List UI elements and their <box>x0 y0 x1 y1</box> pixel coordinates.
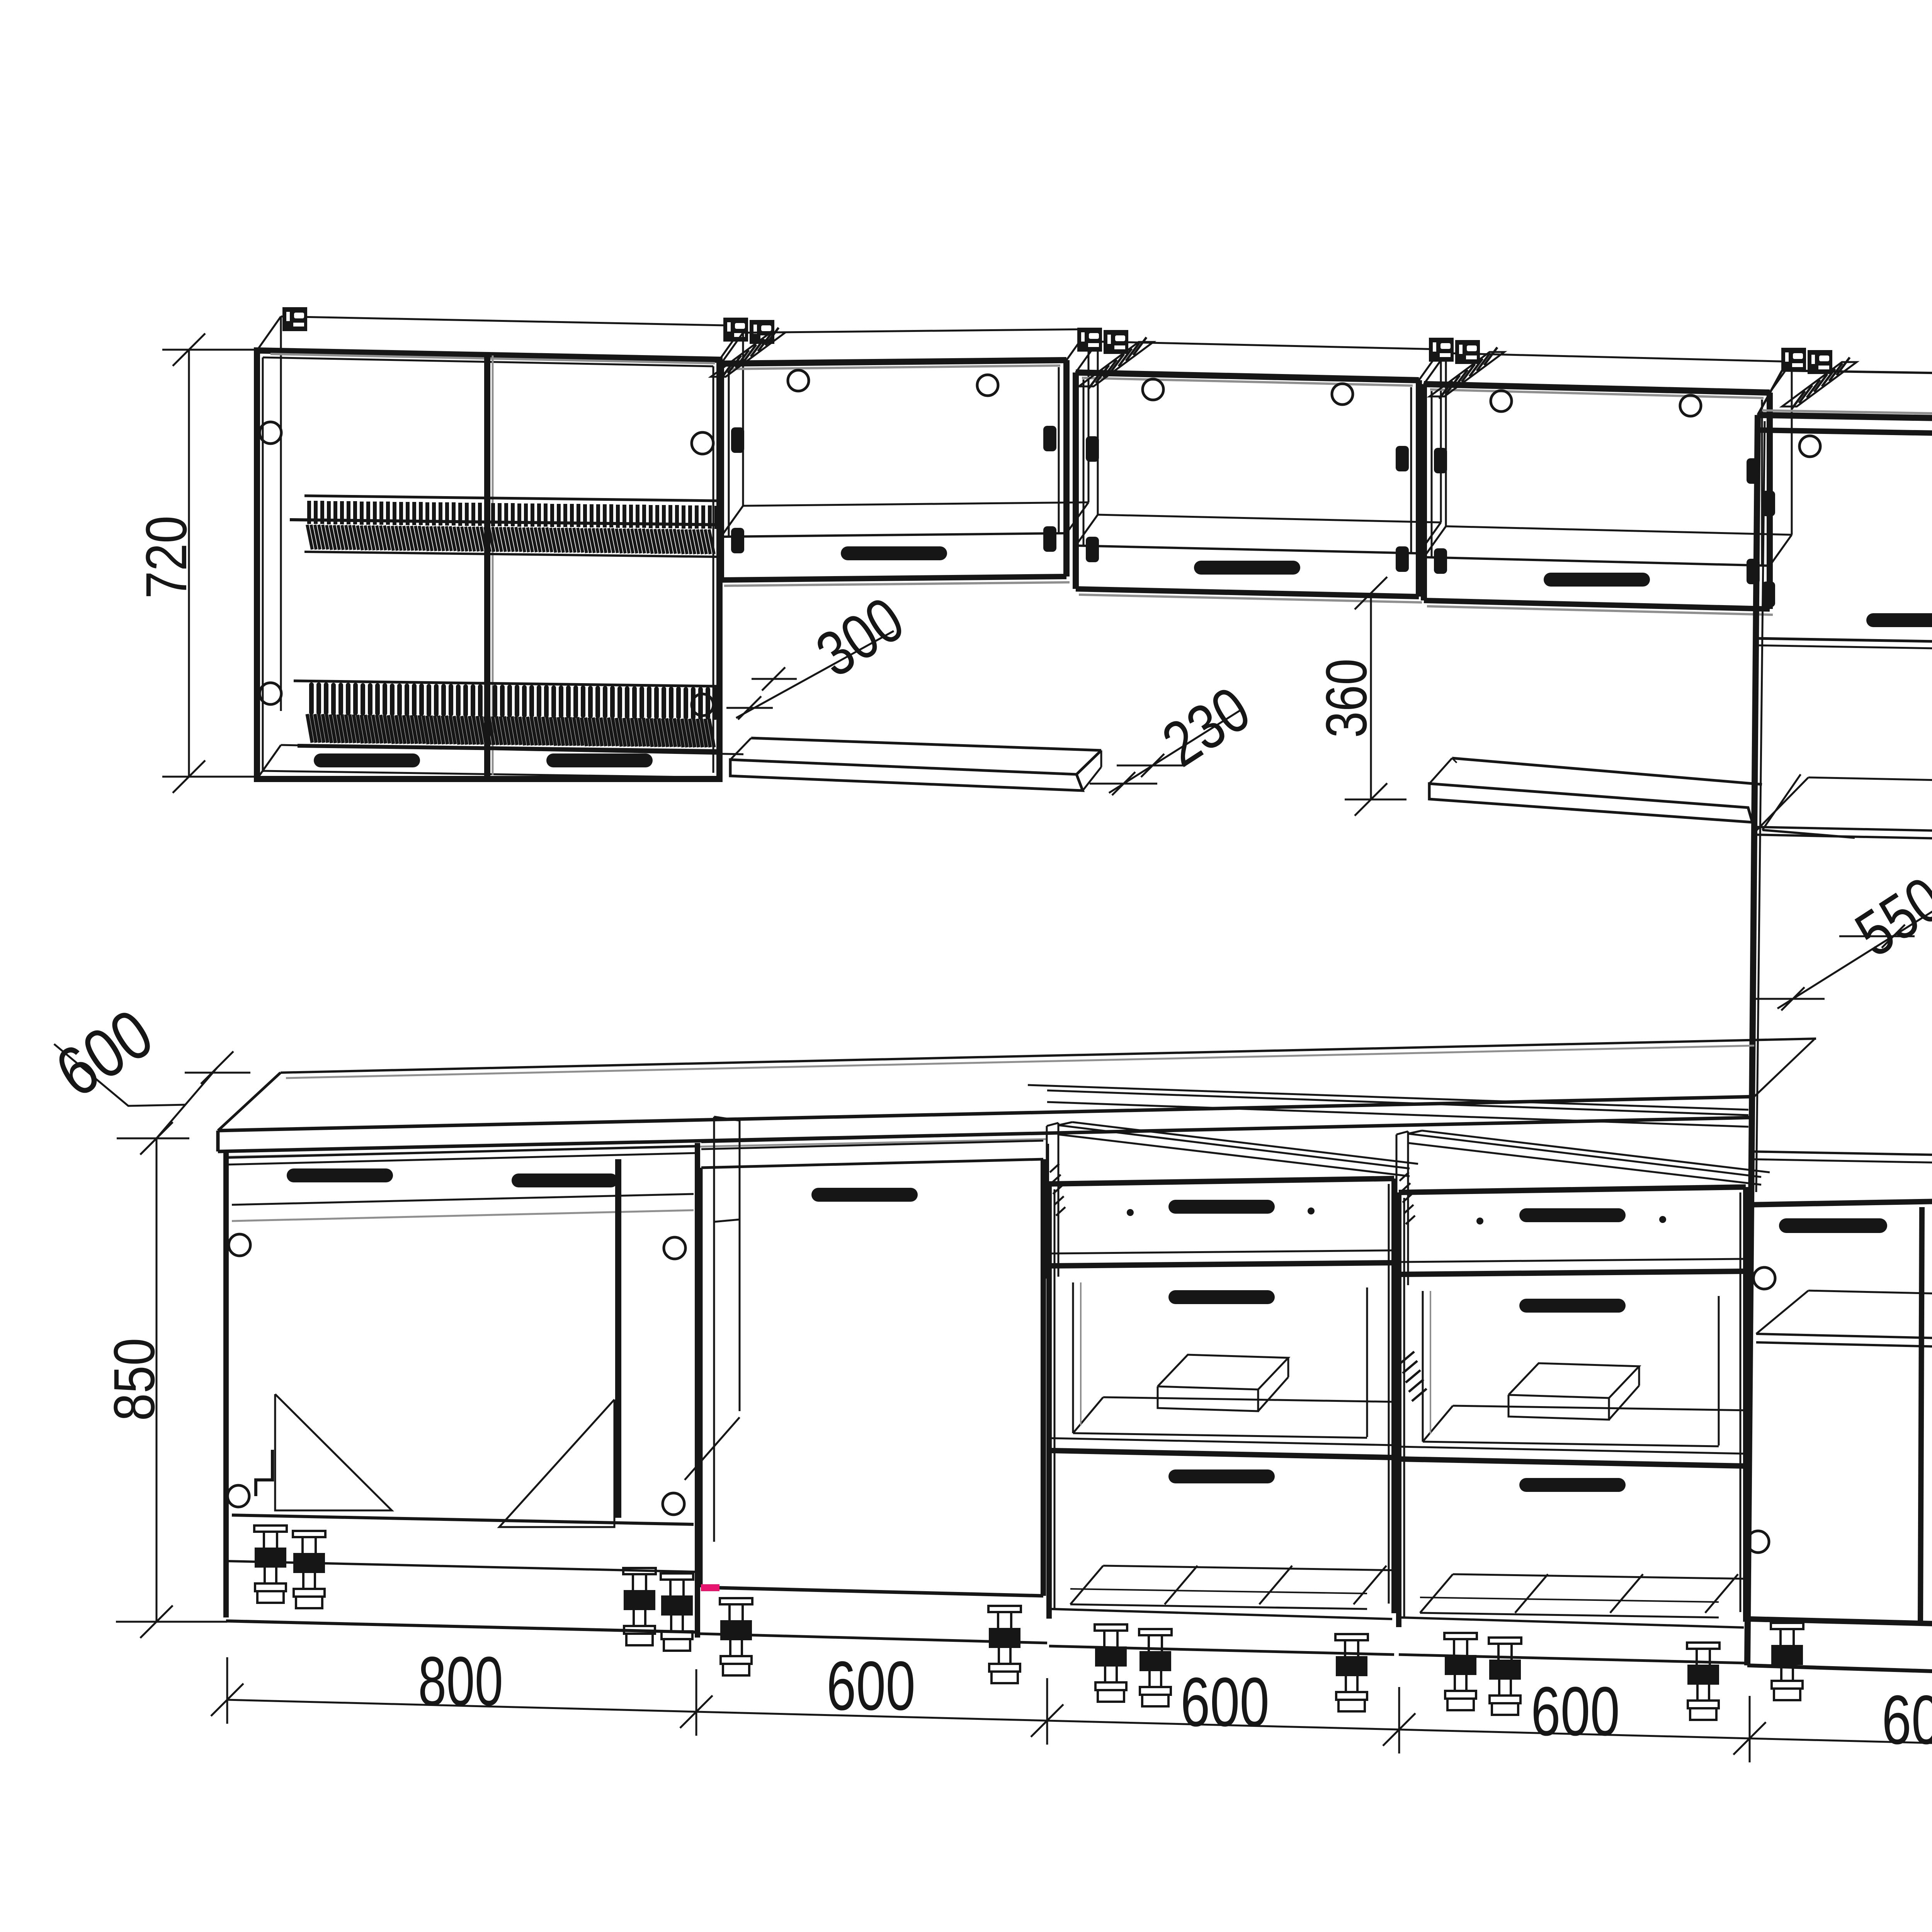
svg-text:600: 600 <box>1882 1681 1932 1759</box>
svg-text:800: 800 <box>418 1643 503 1720</box>
svg-text:600: 600 <box>827 1647 915 1725</box>
svg-text:600: 600 <box>1531 1673 1620 1750</box>
svg-text:850: 850 <box>102 1338 167 1421</box>
svg-text:600: 600 <box>1180 1663 1269 1741</box>
svg-text:720: 720 <box>134 516 199 599</box>
svg-text:360: 360 <box>1314 659 1379 738</box>
